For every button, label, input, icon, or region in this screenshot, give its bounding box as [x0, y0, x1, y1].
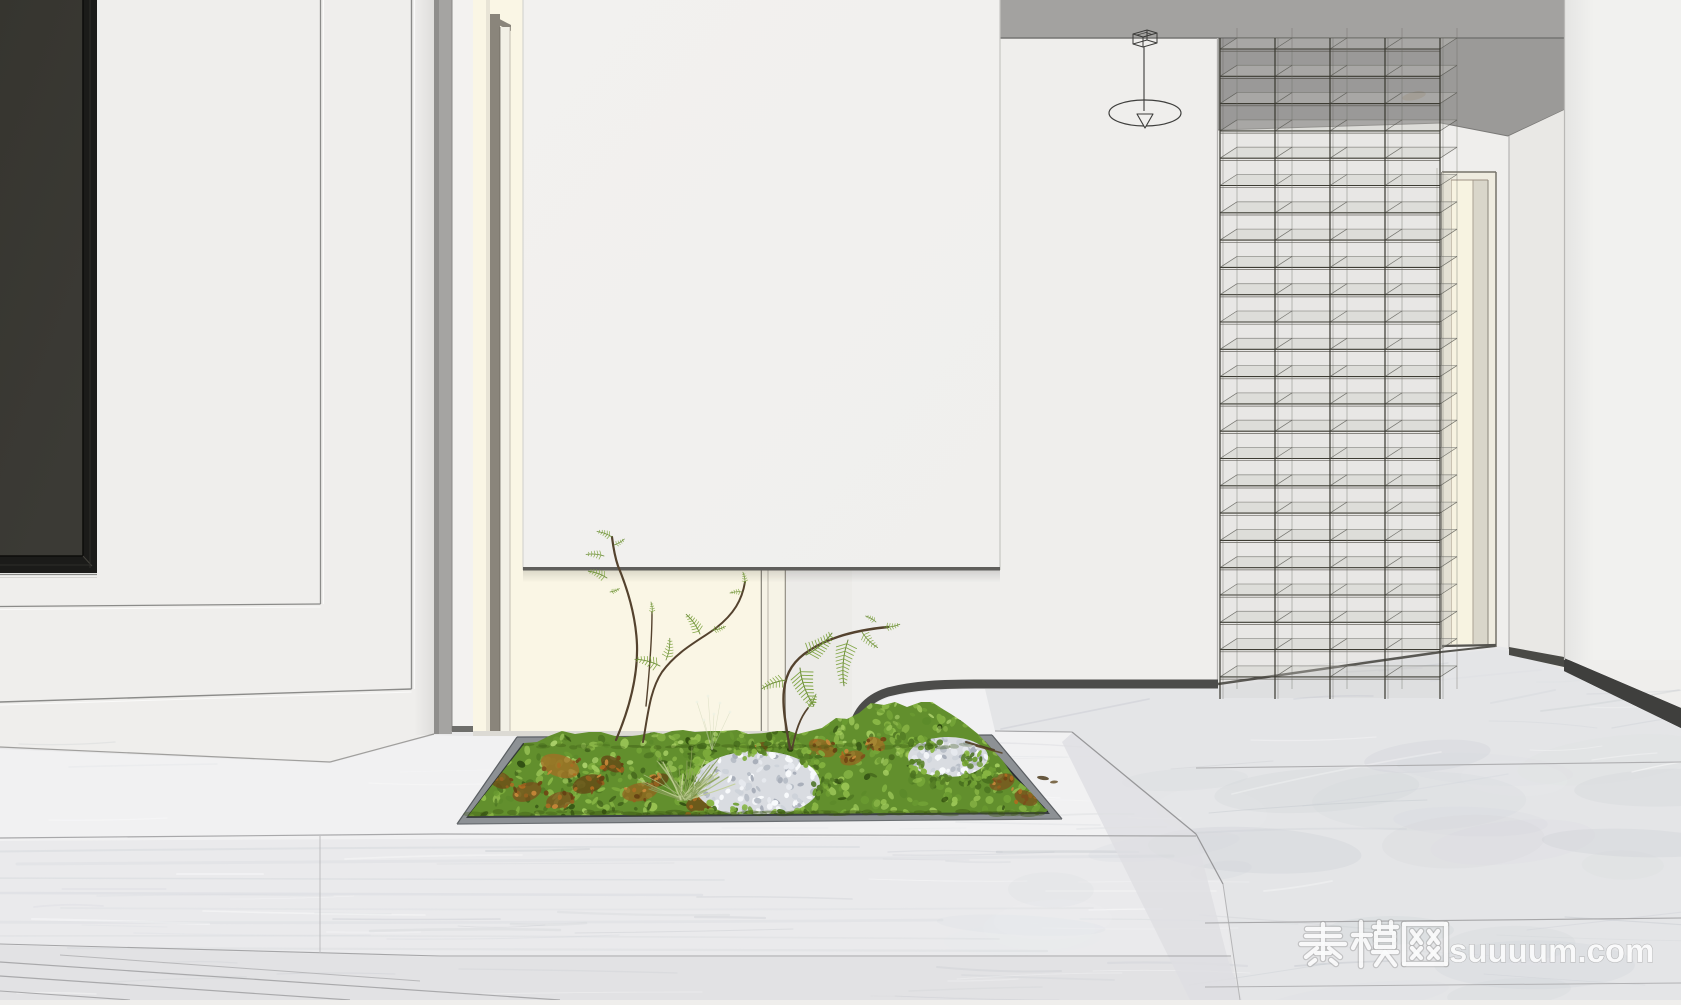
svg-text:suuuum.com: suuuum.com: [1449, 932, 1654, 969]
